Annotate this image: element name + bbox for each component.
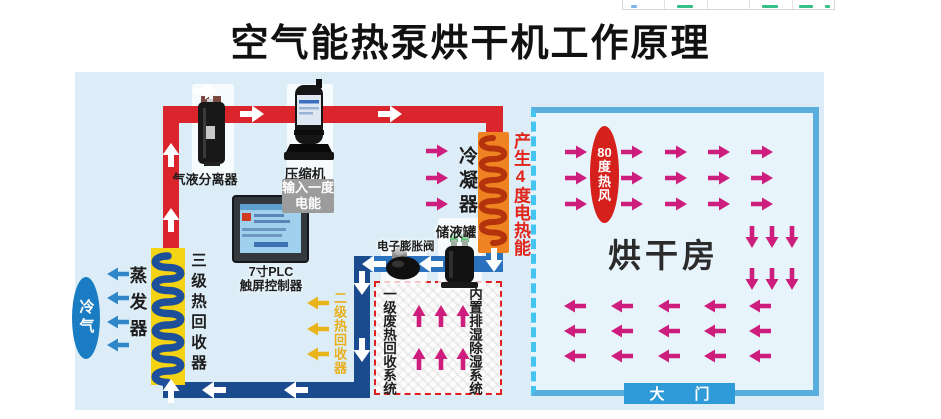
hot-wind-label: 80度热风 xyxy=(596,146,613,204)
dehumidifier-label: 内置排湿除湿系统 xyxy=(464,287,484,395)
evaporator-coil xyxy=(151,248,185,385)
plc-label-line2: 触屏控制器 xyxy=(240,279,303,293)
door-bar: 大门 xyxy=(624,383,735,404)
separator-label: 气液分离器 xyxy=(153,169,257,188)
waste-recovery-up-arrows xyxy=(413,305,470,370)
drying-room-label: 烘干房 xyxy=(608,229,719,277)
waste-recovery-label: 一级废热回收系统 xyxy=(378,287,398,395)
heat-output-label: 产生4度电热能 xyxy=(508,132,533,257)
plc-label: 7寸PLC 触屏控制器 xyxy=(227,265,315,293)
gas-liquid-separator xyxy=(198,96,225,166)
condenser-label: 冷凝器 xyxy=(453,146,480,218)
plc-label-line1: 7寸PLC xyxy=(249,265,293,279)
hot-wind-ellipse: 80度热风 xyxy=(590,126,619,223)
recovery3-label: 三级热回收器 xyxy=(186,252,208,375)
recovery2-label: 二级热回收器 xyxy=(330,291,349,375)
room-return-air-arrows xyxy=(564,300,771,363)
expansion-valve-label: 电子膨胀阀 xyxy=(377,238,435,254)
cold-air-label: 冷气 xyxy=(76,299,97,337)
door-label: 大门 xyxy=(649,383,739,404)
room-down-arrows xyxy=(746,226,799,290)
screenshot: 空气能热泵烘干机工作原理 xyxy=(0,0,941,419)
cold-air-ellipse: 冷气 xyxy=(72,277,100,359)
condenser-heat-arrows xyxy=(426,145,448,211)
recovery2-arrows xyxy=(307,297,329,361)
input-energy-badge: 输入一度电能 xyxy=(282,179,334,213)
evaporator-label: 蒸发器 xyxy=(126,266,151,346)
